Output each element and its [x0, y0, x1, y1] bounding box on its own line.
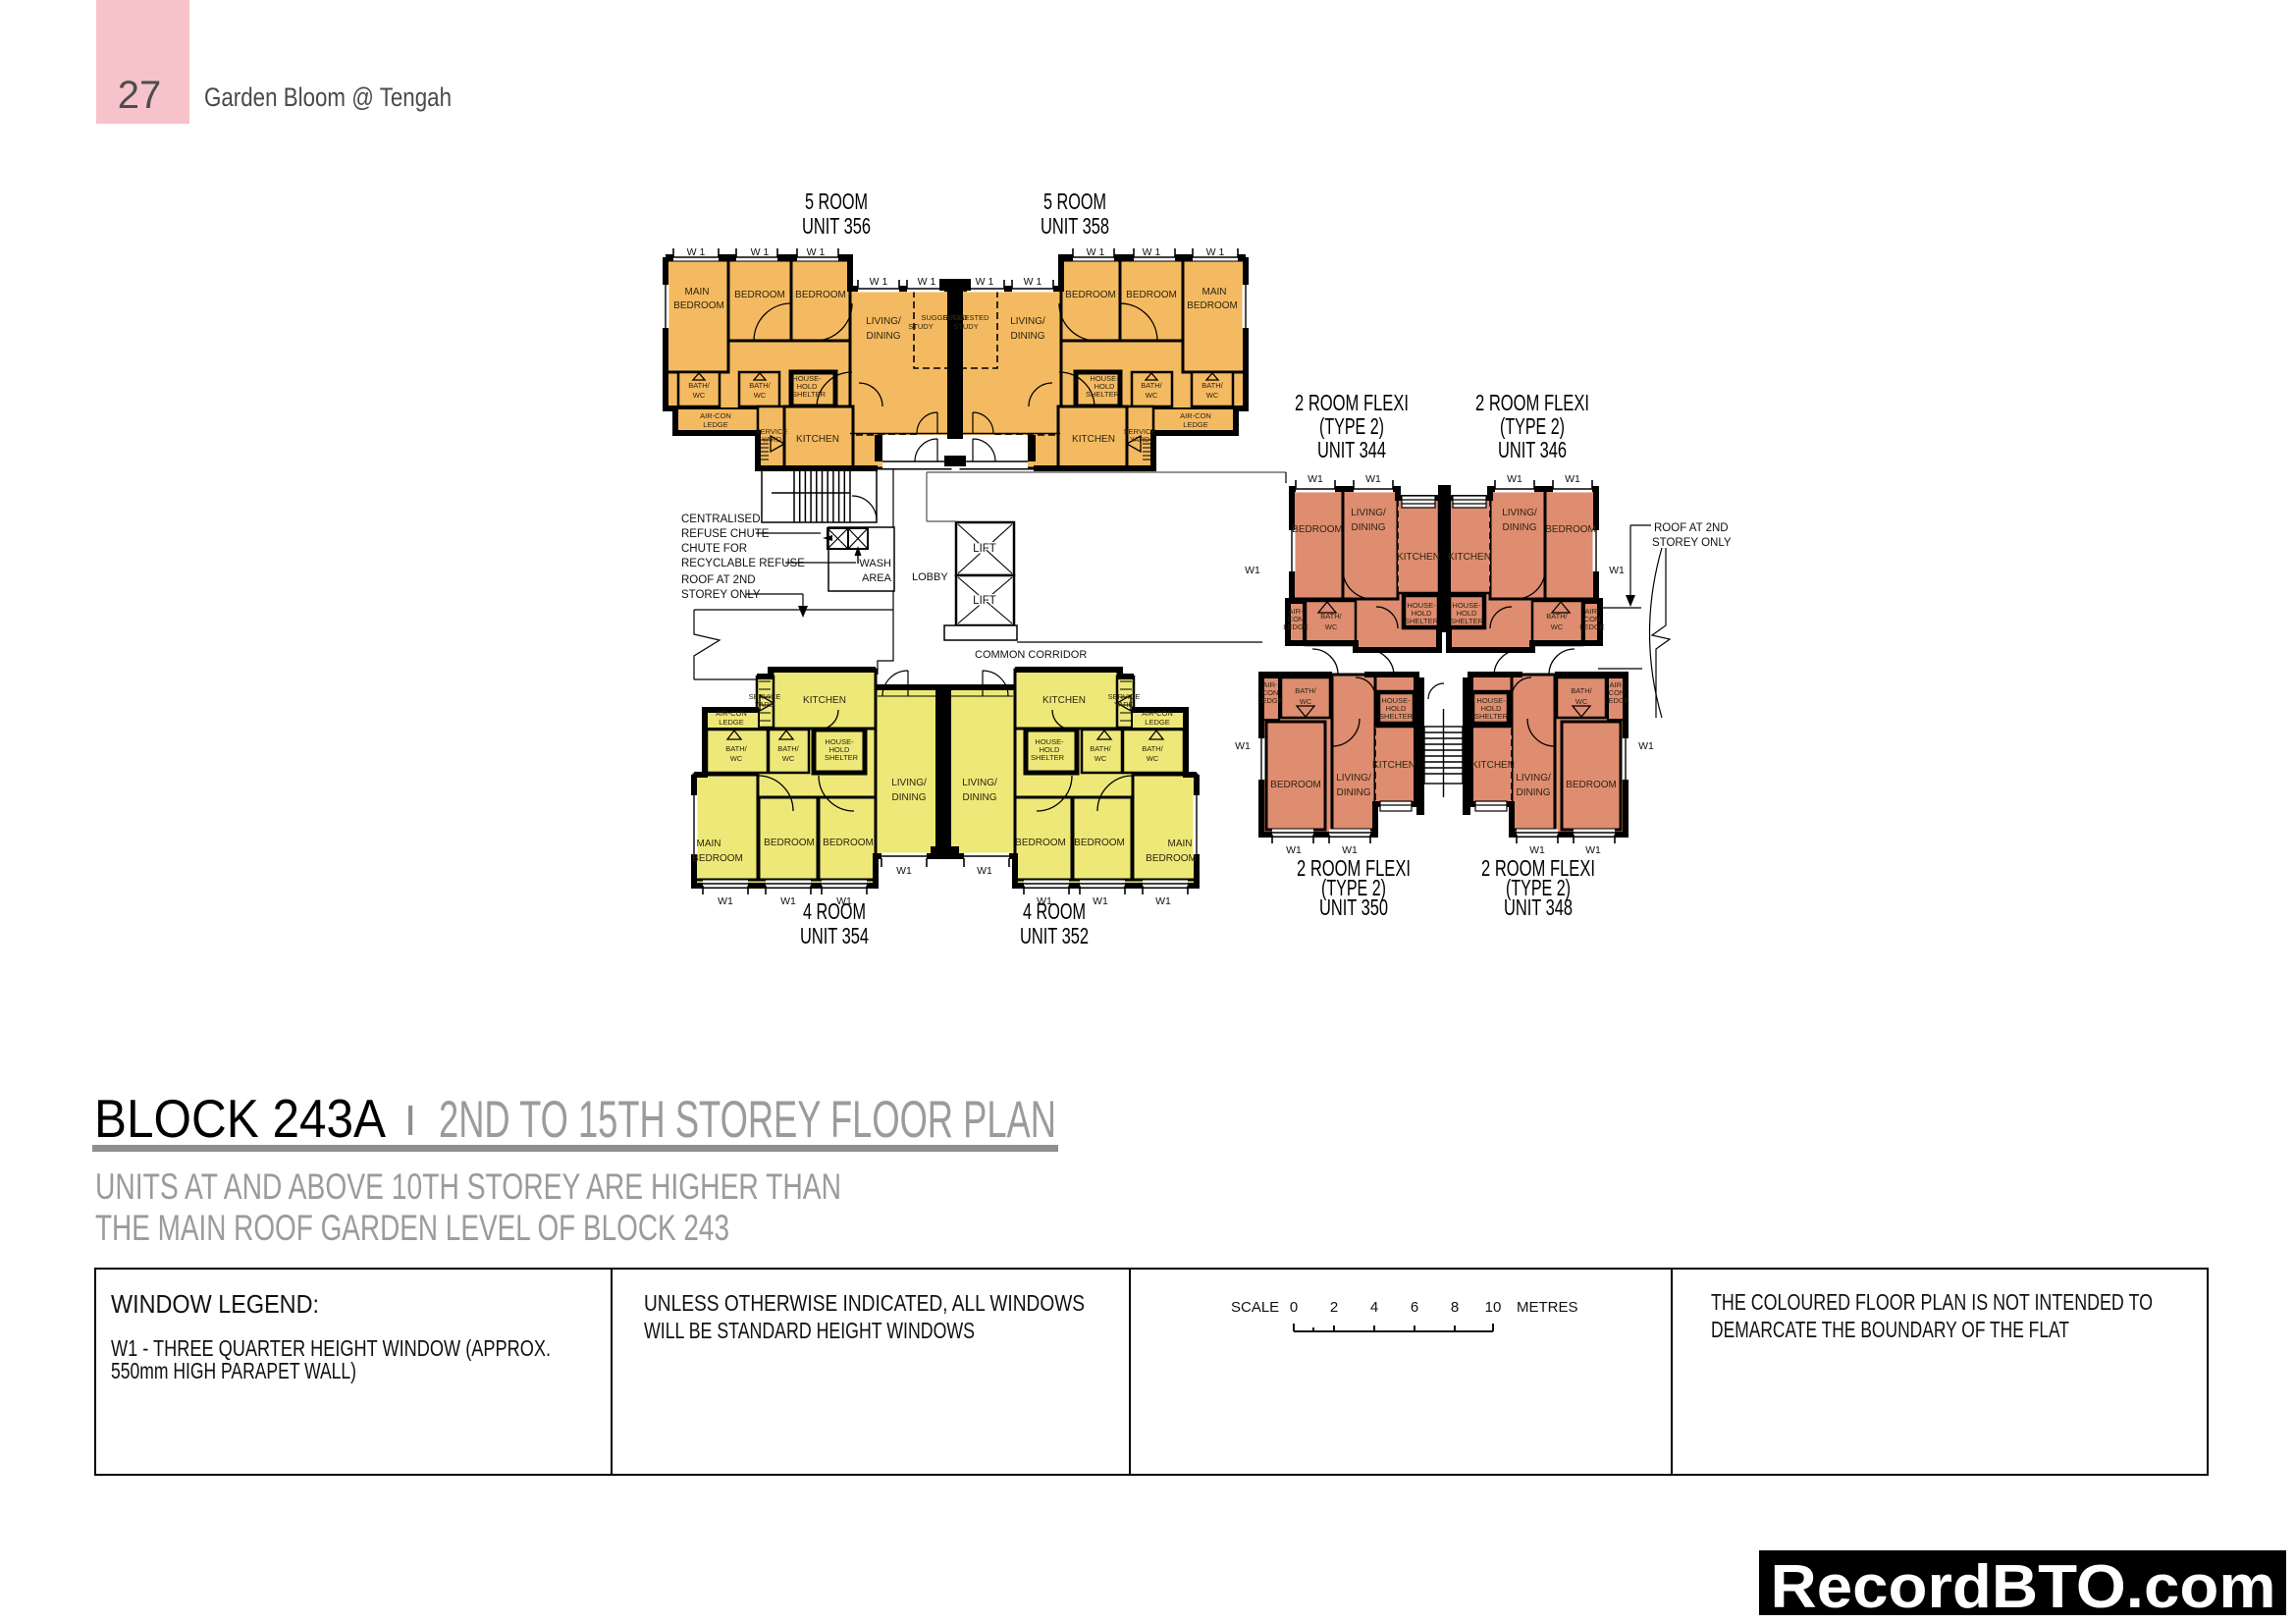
svg-text:LEDGE: LEDGE	[1183, 420, 1207, 429]
svg-text:(TYPE 2): (TYPE 2)	[1319, 413, 1384, 439]
svg-text:BATH/: BATH/	[1320, 612, 1342, 621]
svg-text:2ND TO 15TH STOREY FLOOR PLAN: 2ND TO 15TH STOREY FLOOR PLAN	[439, 1091, 1056, 1149]
svg-text:LIFT: LIFT	[973, 543, 996, 555]
svg-text:BEDROOM: BEDROOM	[1270, 780, 1321, 790]
svg-text:W1: W1	[1235, 740, 1251, 752]
svg-text:10: 10	[1485, 1299, 1502, 1316]
svg-text:(TYPE 2): (TYPE 2)	[1500, 413, 1565, 439]
svg-text:W 1: W 1	[1143, 246, 1161, 258]
svg-text:BATH/: BATH/	[725, 744, 747, 753]
svg-text:BEDROOM: BEDROOM	[673, 300, 724, 311]
svg-text:BATH/: BATH/	[749, 381, 771, 390]
svg-text:AIR-CON: AIR-CON	[716, 709, 747, 718]
svg-text:WINDOW LEGEND:: WINDOW LEGEND:	[111, 1289, 319, 1319]
svg-text:STUDY: STUDY	[908, 322, 933, 331]
svg-text:DEMARCATE THE BOUNDARY OF THE: DEMARCATE THE BOUNDARY OF THE FLAT	[1711, 1317, 2069, 1342]
svg-text:2 ROOM FLEXI: 2 ROOM FLEXI	[1295, 390, 1409, 415]
svg-text:RECYCLABLE REFUSE: RECYCLABLE REFUSE	[681, 558, 805, 569]
svg-text:BEDROOM: BEDROOM	[1545, 524, 1596, 535]
svg-text:W1: W1	[1365, 473, 1381, 485]
svg-text:YARD: YARD	[1130, 435, 1150, 444]
svg-text:BEDROOM: BEDROOM	[795, 290, 846, 300]
svg-text:I: I	[404, 1097, 416, 1145]
svg-text:WC: WC	[1575, 697, 1588, 706]
svg-text:BATH/: BATH/	[1141, 381, 1162, 390]
svg-text:W1: W1	[1609, 565, 1625, 576]
svg-text:ROOF AT 2ND: ROOF AT 2ND	[1654, 522, 1729, 534]
svg-text:AREA: AREA	[862, 572, 892, 584]
svg-text:W1: W1	[1507, 473, 1522, 485]
svg-text:W1: W1	[780, 895, 796, 907]
svg-text:WC: WC	[1095, 754, 1107, 763]
svg-text:W 1: W 1	[687, 246, 706, 258]
svg-text:Garden Bloom @ Tengah: Garden Bloom @ Tengah	[204, 82, 452, 112]
svg-text:DINING: DINING	[1337, 787, 1371, 798]
svg-text:BEDROOM: BEDROOM	[1566, 780, 1617, 790]
svg-text:LEDGE: LEDGE	[1257, 696, 1282, 705]
svg-text:BATH/: BATH/	[1295, 686, 1316, 695]
svg-text:4 ROOM: 4 ROOM	[1023, 898, 1086, 924]
svg-text:MAIN: MAIN	[1202, 287, 1227, 298]
svg-text:2 ROOM FLEXI: 2 ROOM FLEXI	[1475, 390, 1589, 415]
svg-text:DINING: DINING	[1352, 522, 1386, 533]
svg-text:BEDROOM: BEDROOM	[823, 838, 874, 848]
svg-text:BATH/: BATH/	[1090, 744, 1111, 753]
svg-text:KITCHEN: KITCHEN	[1397, 552, 1440, 563]
svg-text:SHELTER: SHELTER	[1474, 712, 1509, 721]
svg-text:UNIT 344: UNIT 344	[1317, 437, 1386, 462]
svg-text:SHELTER: SHELTER	[792, 390, 827, 399]
svg-text:THE COLOURED FLOOR PLAN IS NOT: THE COLOURED FLOOR PLAN IS NOT INTENDED …	[1711, 1289, 2153, 1315]
svg-text:W 1: W 1	[1087, 246, 1105, 258]
svg-text:LIVING/: LIVING/	[1336, 773, 1371, 784]
svg-text:DINING: DINING	[1503, 522, 1537, 533]
svg-text:W1: W1	[718, 895, 733, 907]
svg-text:CHUTE FOR: CHUTE FOR	[681, 543, 747, 555]
svg-text:BATH/: BATH/	[1571, 686, 1592, 695]
svg-text:BEDROOM: BEDROOM	[1146, 853, 1197, 864]
svg-text:UNITS AT AND ABOVE 10TH STOREY: UNITS AT AND ABOVE 10TH STOREY ARE HIGHE…	[95, 1166, 841, 1207]
svg-text:STUDY: STUDY	[953, 322, 978, 331]
svg-text:RecordBTO.com: RecordBTO.com	[1771, 1553, 2276, 1621]
svg-text:WC: WC	[730, 754, 743, 763]
svg-text:SHELTER: SHELTER	[825, 753, 859, 762]
svg-text:KITCHEN: KITCHEN	[1448, 552, 1491, 563]
svg-text:W 1: W 1	[751, 246, 770, 258]
svg-text:SCALE: SCALE	[1231, 1299, 1279, 1316]
svg-text:THE MAIN ROOF GARDEN LEVEL OF: THE MAIN ROOF GARDEN LEVEL OF BLOCK 243	[95, 1208, 729, 1248]
svg-text:27: 27	[118, 74, 162, 117]
svg-text:REFUSE CHUTE: REFUSE CHUTE	[681, 528, 770, 540]
svg-text:LIVING/: LIVING/	[1502, 508, 1537, 518]
svg-text:UNIT 348: UNIT 348	[1504, 894, 1573, 920]
svg-text:KITCHEN: KITCHEN	[1372, 760, 1415, 771]
svg-text:W1: W1	[1565, 473, 1580, 485]
svg-text:DINING: DINING	[892, 792, 927, 803]
svg-text:KITCHEN: KITCHEN	[796, 434, 839, 445]
svg-text:YARD: YARD	[1114, 700, 1135, 709]
svg-text:W1: W1	[1155, 895, 1171, 907]
svg-text:SHELTER: SHELTER	[1086, 390, 1120, 399]
svg-text:BATH/: BATH/	[688, 381, 710, 390]
svg-text:LEDGE: LEDGE	[703, 420, 727, 429]
svg-text:CENTRALISED: CENTRALISED	[681, 514, 761, 525]
svg-text:BEDROOM: BEDROOM	[692, 853, 743, 864]
svg-text:BEDROOM: BEDROOM	[1292, 524, 1343, 535]
svg-text:4 ROOM: 4 ROOM	[803, 898, 866, 924]
svg-text:W 1: W 1	[976, 276, 994, 288]
svg-text:LIFT: LIFT	[973, 595, 996, 607]
svg-text:6: 6	[1411, 1299, 1418, 1316]
svg-text:BATH/: BATH/	[1546, 612, 1568, 621]
svg-text:0: 0	[1290, 1299, 1298, 1316]
svg-text:KITCHEN: KITCHEN	[1072, 434, 1115, 445]
svg-text:AIR-CON: AIR-CON	[1142, 709, 1173, 718]
svg-text:UNLESS OTHERWISE INDICATED, A: UNLESS OTHERWISE INDICATED, ALL WINDOWS	[644, 1290, 1085, 1316]
svg-text:LIVING/: LIVING/	[1351, 508, 1386, 518]
svg-text:KITCHEN: KITCHEN	[1471, 760, 1515, 771]
svg-text:UNIT 358: UNIT 358	[1041, 213, 1109, 239]
svg-text:SHELTER: SHELTER	[1379, 712, 1414, 721]
svg-text:LEDGE: LEDGE	[1283, 623, 1308, 631]
svg-text:550mm HIGH PARAPET WALL): 550mm HIGH PARAPET WALL)	[111, 1358, 356, 1383]
svg-text:AIR-CON: AIR-CON	[1180, 411, 1211, 420]
svg-text:BATH/: BATH/	[1142, 744, 1163, 753]
svg-text:MAIN: MAIN	[1168, 839, 1193, 849]
svg-text:LEDGE: LEDGE	[1579, 623, 1604, 631]
svg-text:WC: WC	[1325, 623, 1338, 631]
svg-text:LIVING/: LIVING/	[962, 778, 997, 788]
svg-text:LIVING/: LIVING/	[1010, 316, 1045, 327]
svg-text:BEDROOM: BEDROOM	[1065, 290, 1116, 300]
svg-text:BATH/: BATH/	[1201, 381, 1223, 390]
svg-text:UNIT 346: UNIT 346	[1498, 437, 1567, 462]
svg-text:BEDROOM: BEDROOM	[764, 838, 815, 848]
svg-text:BEDROOM: BEDROOM	[1074, 838, 1125, 848]
svg-text:UNIT 350: UNIT 350	[1319, 894, 1388, 920]
svg-text:W1: W1	[1308, 473, 1323, 485]
svg-text:MAIN: MAIN	[685, 287, 710, 298]
svg-text:WILL BE STANDARD HEIGHT WINDOW: WILL BE STANDARD HEIGHT WINDOWS	[644, 1318, 975, 1343]
svg-text:LIVING/: LIVING/	[891, 778, 927, 788]
svg-text:LIVING/: LIVING/	[866, 316, 901, 327]
svg-text:LEDGE: LEDGE	[1604, 696, 1629, 705]
svg-text:BEDROOM: BEDROOM	[734, 290, 785, 300]
svg-text:DINING: DINING	[1517, 787, 1551, 798]
svg-text:W1: W1	[1245, 565, 1260, 576]
svg-text:SHELTER: SHELTER	[1031, 753, 1065, 762]
svg-text:BLOCK 243A: BLOCK 243A	[94, 1088, 386, 1149]
svg-text:W 1: W 1	[870, 276, 888, 288]
svg-text:8: 8	[1451, 1299, 1459, 1316]
svg-text:WASH: WASH	[859, 558, 891, 569]
svg-text:W 1: W 1	[1206, 246, 1225, 258]
svg-text:DINING: DINING	[867, 331, 901, 342]
svg-text:BEDROOM: BEDROOM	[1126, 290, 1177, 300]
svg-text:WC: WC	[1551, 623, 1564, 631]
svg-text:WC: WC	[754, 391, 767, 400]
svg-text:KITCHEN: KITCHEN	[1042, 695, 1086, 706]
svg-text:W1: W1	[896, 865, 912, 877]
svg-text:BEDROOM: BEDROOM	[1187, 300, 1238, 311]
svg-text:KITCHEN: KITCHEN	[803, 695, 846, 706]
svg-text:UNIT 356: UNIT 356	[802, 213, 871, 239]
svg-text:UNIT 354: UNIT 354	[800, 923, 869, 948]
svg-text:LEDGE: LEDGE	[719, 718, 743, 727]
svg-text:2: 2	[1330, 1299, 1338, 1316]
svg-text:SHELTER: SHELTER	[1405, 617, 1439, 625]
svg-text:YARD: YARD	[762, 435, 782, 444]
svg-text:YARD: YARD	[755, 700, 775, 709]
svg-text:ROOF AT 2ND: ROOF AT 2ND	[681, 574, 756, 586]
svg-text:W 1: W 1	[1024, 276, 1042, 288]
svg-text:WC: WC	[1300, 697, 1312, 706]
svg-text:LIVING/: LIVING/	[1516, 773, 1551, 784]
svg-text:WC: WC	[1147, 754, 1159, 763]
svg-text:DINING: DINING	[1011, 331, 1045, 342]
svg-text:W 1: W 1	[918, 276, 936, 288]
svg-text:4: 4	[1370, 1299, 1378, 1316]
svg-text:DINING: DINING	[963, 792, 997, 803]
svg-text:W1: W1	[1638, 740, 1654, 752]
svg-text:MAIN: MAIN	[697, 839, 721, 849]
svg-text:COMMON CORRIDOR: COMMON CORRIDOR	[975, 649, 1087, 661]
svg-text:LOBBY: LOBBY	[912, 571, 948, 583]
svg-text:W 1: W 1	[807, 246, 826, 258]
svg-text:WC: WC	[1206, 391, 1219, 400]
svg-text:5 ROOM: 5 ROOM	[805, 189, 868, 214]
svg-text:BEDROOM: BEDROOM	[1015, 838, 1066, 848]
svg-text:UNIT 352: UNIT 352	[1020, 923, 1089, 948]
svg-text:SHELTER: SHELTER	[1450, 617, 1484, 625]
svg-text:WC: WC	[782, 754, 795, 763]
svg-text:5 ROOM: 5 ROOM	[1043, 189, 1106, 214]
svg-text:LEDGE: LEDGE	[1145, 718, 1169, 727]
svg-text:W1: W1	[1093, 895, 1108, 907]
svg-text:BATH/: BATH/	[777, 744, 799, 753]
svg-text:METRES: METRES	[1517, 1299, 1578, 1316]
svg-text:AIR-CON: AIR-CON	[700, 411, 731, 420]
svg-text:STOREY ONLY: STOREY ONLY	[1652, 537, 1732, 549]
svg-text:WC: WC	[1146, 391, 1158, 400]
svg-text:W1: W1	[977, 865, 992, 877]
svg-text:WC: WC	[693, 391, 706, 400]
svg-text:SUGGESTED: SUGGESTED	[942, 313, 989, 322]
svg-text:STOREY ONLY: STOREY ONLY	[681, 589, 761, 601]
